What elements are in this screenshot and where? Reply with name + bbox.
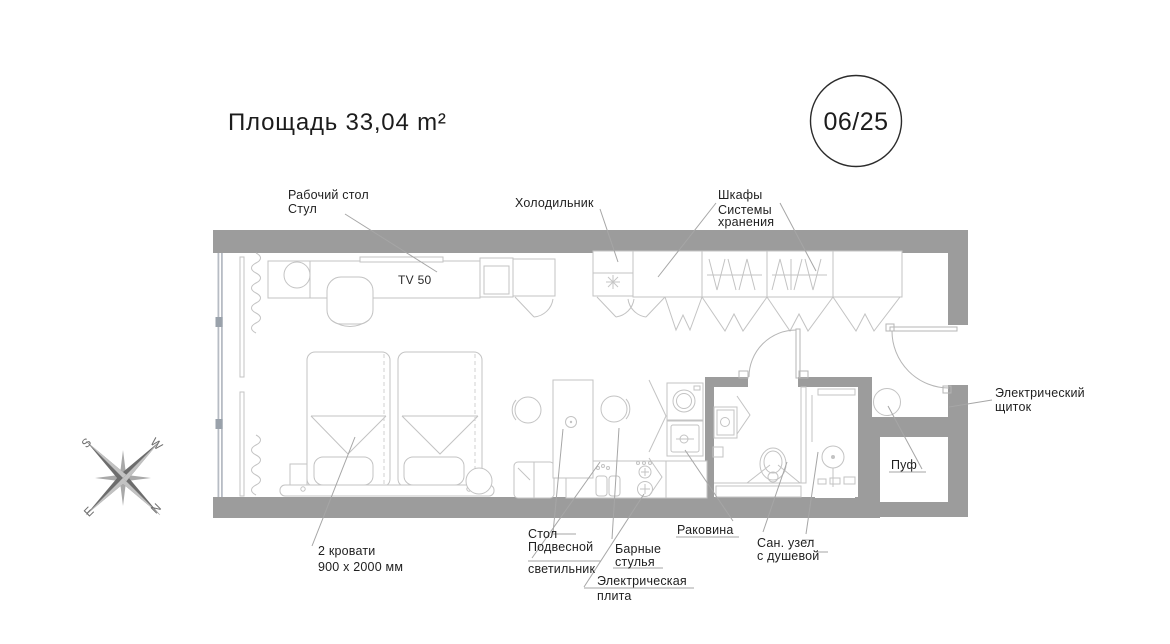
label-table: Стол	[528, 527, 557, 541]
bar-stool-right	[601, 396, 630, 422]
label-closets: Шкафы	[718, 188, 762, 202]
label-wc-1: Сан. узел	[757, 536, 814, 550]
bar-stool-left	[512, 397, 541, 423]
tv	[360, 257, 443, 262]
label-sink: Раковина	[677, 523, 734, 537]
floorplan-page: Площадь 33,04 m² 06/25	[0, 0, 1170, 644]
bar-table	[553, 380, 593, 478]
fridge	[593, 251, 633, 296]
label-beds-2: 900 x 2000 мм	[318, 560, 403, 574]
bathroom-door	[739, 329, 808, 378]
work-desk	[268, 261, 480, 298]
kitchen-upper-row	[480, 251, 902, 331]
wardrobe-1	[702, 251, 767, 297]
toilet	[747, 448, 800, 483]
snowflake-icon	[606, 275, 620, 289]
nightstand	[290, 464, 307, 486]
washing-machine	[667, 383, 703, 420]
sheet-number: 06/25	[823, 108, 888, 136]
shower-partition	[801, 387, 806, 483]
window-wall	[216, 253, 261, 497]
bed-bench	[280, 485, 494, 496]
curtain-icon	[252, 253, 261, 333]
wardrobe-2	[767, 251, 833, 297]
label-desk: Рабочий стол	[288, 188, 369, 202]
sheet-number-badge: 06/25	[811, 76, 902, 167]
entrance-door	[890, 327, 957, 331]
label-wc-2: с душевой	[757, 549, 819, 563]
cabinet-front-marks	[515, 297, 900, 331]
label-pouf: Пуф	[891, 458, 917, 472]
label-stove-2: плита	[597, 589, 632, 603]
window-mullion	[216, 419, 223, 429]
shower-niche	[815, 489, 855, 498]
compass-n: N	[148, 500, 164, 516]
kitchen-sink-cabinet	[480, 258, 513, 297]
bathroom-sink	[713, 396, 750, 457]
desk-stool	[284, 262, 310, 288]
page-title: Площадь 33,04 m²	[228, 109, 447, 136]
label-chair: Стул	[288, 202, 317, 216]
label-electrical-1: Электрический	[995, 386, 1085, 400]
shower	[812, 389, 855, 487]
ball-pouf	[466, 468, 492, 494]
curtain-icon	[252, 435, 261, 495]
label-stools-2: стулья	[615, 555, 655, 569]
label-electrical-2: щиток	[995, 400, 1032, 414]
bed-2	[398, 352, 482, 487]
desk-chair	[327, 277, 373, 327]
label-storage-2: хранения	[718, 215, 774, 229]
pouf	[874, 389, 901, 416]
compass-rose: S W E N	[79, 435, 166, 520]
label-pendant-2: светильник	[528, 562, 595, 576]
bed-1	[307, 352, 390, 487]
entry	[874, 324, 958, 416]
tv-label: TV 50	[398, 273, 432, 287]
label-pendant-1: Подвесной	[528, 540, 593, 554]
compass-s: S	[79, 435, 95, 451]
label-stove-1: Электрическая	[597, 574, 687, 588]
label-beds-1: 2 кровати	[318, 544, 375, 558]
floorplan-drawing: Площадь 33,04 m² 06/25	[0, 0, 1170, 644]
beds	[280, 352, 494, 496]
label-stools-1: Барные	[615, 542, 661, 556]
label-fridge: Холодильник	[515, 196, 594, 210]
window-mullion	[216, 317, 223, 327]
closet-end	[833, 251, 902, 297]
